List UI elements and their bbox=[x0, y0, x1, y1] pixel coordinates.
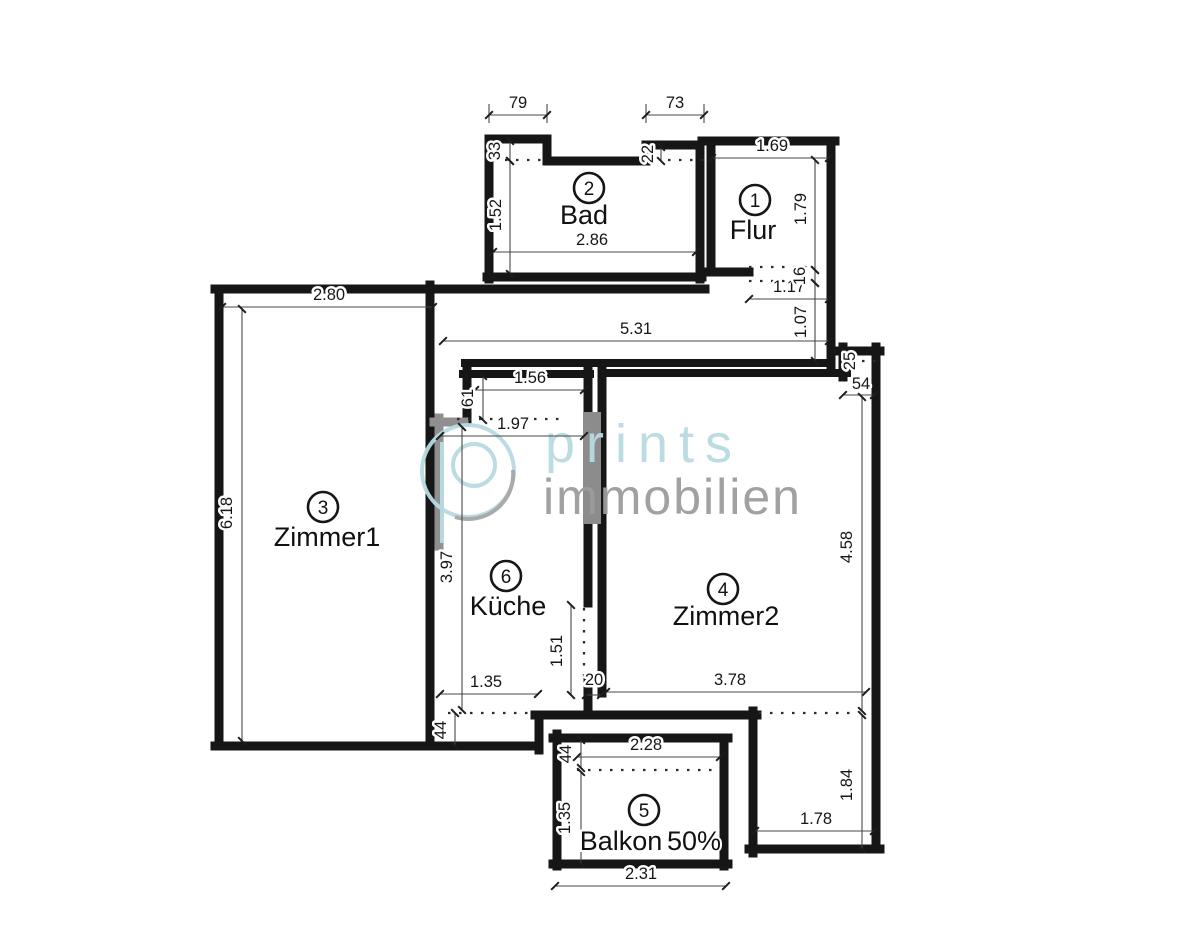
dim-zimmer2-lower-width: 1.78 bbox=[800, 810, 832, 828]
dim-zimmer2-notch-width: 54 bbox=[852, 375, 870, 393]
dim-kueche-top-width: 1.56 bbox=[514, 369, 546, 387]
dim-flur-door-offset: 16 bbox=[791, 267, 809, 285]
room-label-zimmer2: Zimmer2 bbox=[673, 601, 780, 631]
room-label-balkon-share: 50% bbox=[667, 826, 721, 856]
dim-kueche-step: 61 bbox=[459, 389, 477, 407]
dim-kueche-bottom-step: 44 bbox=[432, 721, 450, 739]
dim-bad-top-left: 79 bbox=[509, 94, 527, 112]
watermark-logo-inner-circle-icon bbox=[453, 444, 495, 486]
dim-bad-height: 1.52 bbox=[487, 199, 505, 231]
room-number-kueche: 6 bbox=[501, 567, 512, 588]
dim-balkon-rail: 44 bbox=[557, 745, 575, 763]
dim-kueche-door-gap: 20 bbox=[585, 671, 603, 689]
dim-kueche-door-height: 1.51 bbox=[548, 635, 566, 667]
watermark: prints immobilien bbox=[422, 414, 802, 543]
room-label-kueche: Küche bbox=[470, 591, 547, 621]
dim-zimmer1-height: 6.18 bbox=[218, 497, 236, 529]
dim-zimmer2-notch-depth: 25 bbox=[841, 352, 859, 370]
dim-balkon-top-width: 2.28 bbox=[630, 736, 662, 754]
watermark-logo-gray-arc-icon bbox=[455, 470, 513, 519]
room-number-flur: 1 bbox=[750, 191, 761, 212]
watermark-brand-bottom: immobilien bbox=[543, 469, 802, 525]
room-label-balkon: Balkon bbox=[580, 826, 663, 856]
dim-flur-width: 1.69 bbox=[756, 137, 788, 155]
dim-zimmer2-height: 4.58 bbox=[838, 531, 856, 563]
dim-zimmer1-width: 2.80 bbox=[313, 286, 345, 304]
room-number-balkon: 5 bbox=[639, 801, 650, 822]
room-label-bad: Bad bbox=[560, 200, 608, 230]
dim-bad-top-right: 73 bbox=[666, 94, 684, 112]
dim-kueche-opening: 1.97 bbox=[497, 415, 529, 433]
dim-kueche-bottom-width: 1.35 bbox=[470, 673, 502, 691]
dim-bad-width: 2.86 bbox=[576, 231, 608, 249]
room-label-zimmer1: Zimmer1 bbox=[274, 522, 381, 552]
dim-zimmer2-lower-height: 1.84 bbox=[838, 769, 856, 801]
floorplan-page: prints immobilien bbox=[0, 0, 1200, 946]
room-label-flur: Flur bbox=[730, 215, 777, 245]
dim-balkon-height: 1.35 bbox=[556, 802, 574, 834]
dim-kueche-height: 3.97 bbox=[438, 551, 456, 583]
dim-hall-width: 5.31 bbox=[620, 320, 652, 338]
dim-bad-step-right: 22 bbox=[639, 145, 657, 163]
floorplan-drawing: prints immobilien bbox=[0, 0, 1200, 946]
room-number-zimmer1: 3 bbox=[318, 498, 329, 519]
watermark-brand-top: prints bbox=[545, 414, 743, 474]
room-number-bad: 2 bbox=[584, 179, 595, 200]
dim-bad-step-left: 33 bbox=[486, 142, 504, 160]
dim-balkon-bottom-width: 2.31 bbox=[625, 865, 657, 883]
dim-flur-height: 1.79 bbox=[792, 193, 810, 225]
dim-hall-height: 1.07 bbox=[792, 306, 810, 338]
dim-zimmer2-width: 3.78 bbox=[714, 671, 746, 689]
room-number-zimmer2: 4 bbox=[718, 580, 729, 601]
